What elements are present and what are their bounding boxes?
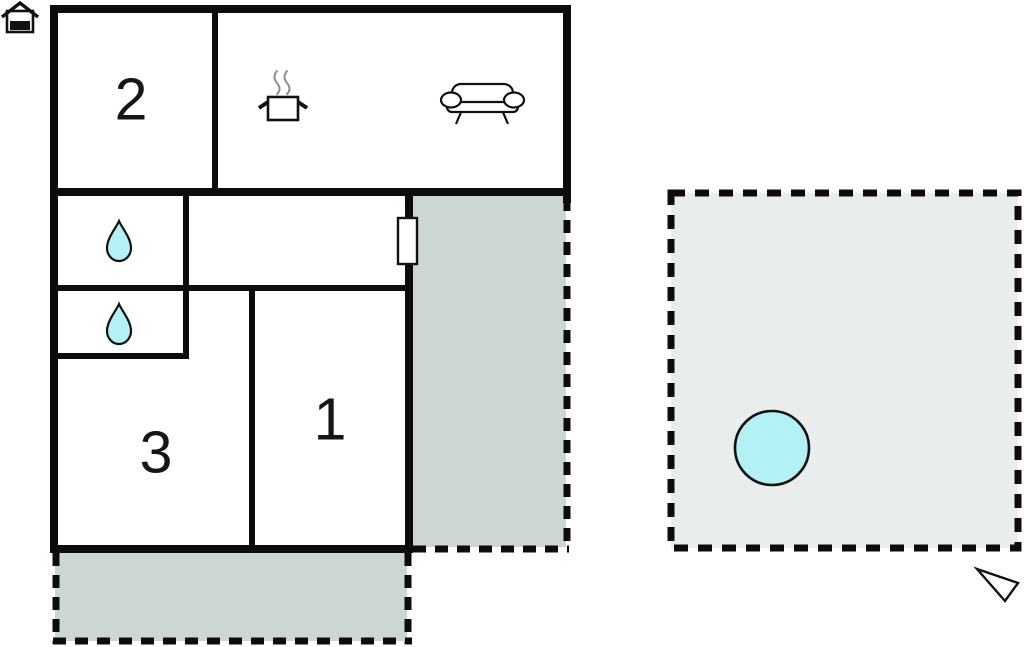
- sofa-icon: [441, 84, 524, 124]
- terrace-right-fill: [413, 196, 566, 547]
- wall-segment: [183, 287, 189, 359]
- plot-dashed-boundary: [671, 193, 1018, 548]
- wall-segment: [183, 192, 189, 290]
- wall-segment: [50, 5, 58, 553]
- terrace-bottom: [53, 553, 412, 644]
- wall-segment: [58, 353, 189, 359]
- water-drop-icon: [107, 221, 131, 261]
- terrace-right: [413, 196, 569, 549]
- cooking-pot-icon: [259, 71, 307, 120]
- wall-segment: [50, 188, 571, 196]
- room-3-label: 3: [140, 424, 173, 483]
- wall-segment: [563, 5, 571, 203]
- terrace-bottom-fill: [55, 553, 407, 641]
- wall-segment: [249, 287, 255, 549]
- floor-plan-page: 2 1 3: [0, 0, 1024, 647]
- plot-area: [671, 193, 1018, 548]
- door-marker: [398, 218, 417, 264]
- wall-segment: [50, 545, 413, 553]
- pool-circle: [735, 411, 809, 485]
- floor-plan-canvas: [0, 0, 1024, 647]
- north-arrow-icon: [977, 569, 1018, 601]
- wall-segment: [58, 285, 405, 291]
- water-drop-icon: [107, 304, 131, 344]
- room-1-label: 1: [314, 391, 347, 450]
- wall-segment: [212, 8, 218, 194]
- wall-segment: [50, 5, 571, 13]
- house-icon: [2, 3, 38, 32]
- room-2-label: 2: [115, 71, 148, 130]
